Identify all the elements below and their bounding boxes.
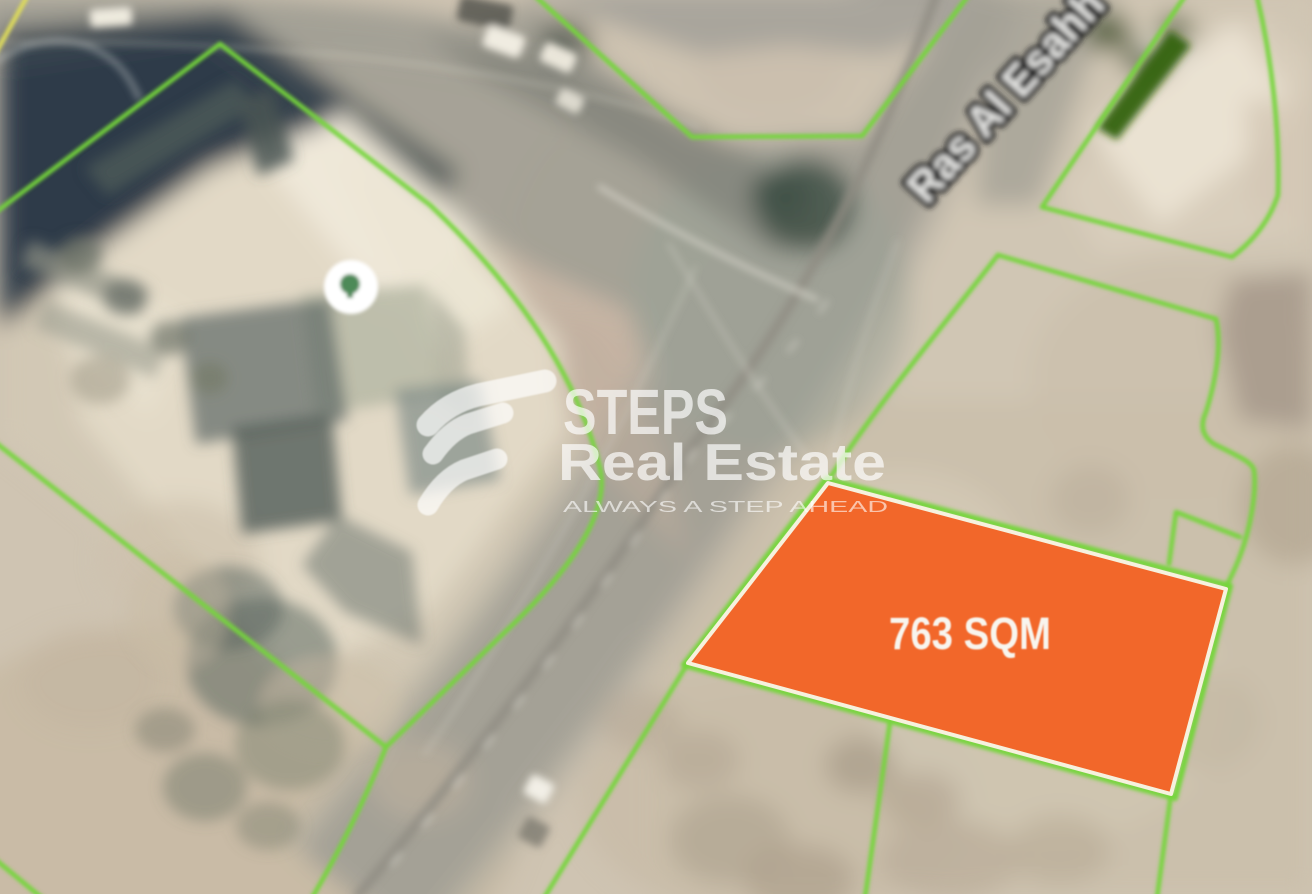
svg-text:ALWAYS A STEP AHEAD: ALWAYS A STEP AHEAD xyxy=(563,499,888,516)
svg-text:763 SQM: 763 SQM xyxy=(889,608,1051,659)
svg-text:Real Estate: Real Estate xyxy=(558,434,886,492)
